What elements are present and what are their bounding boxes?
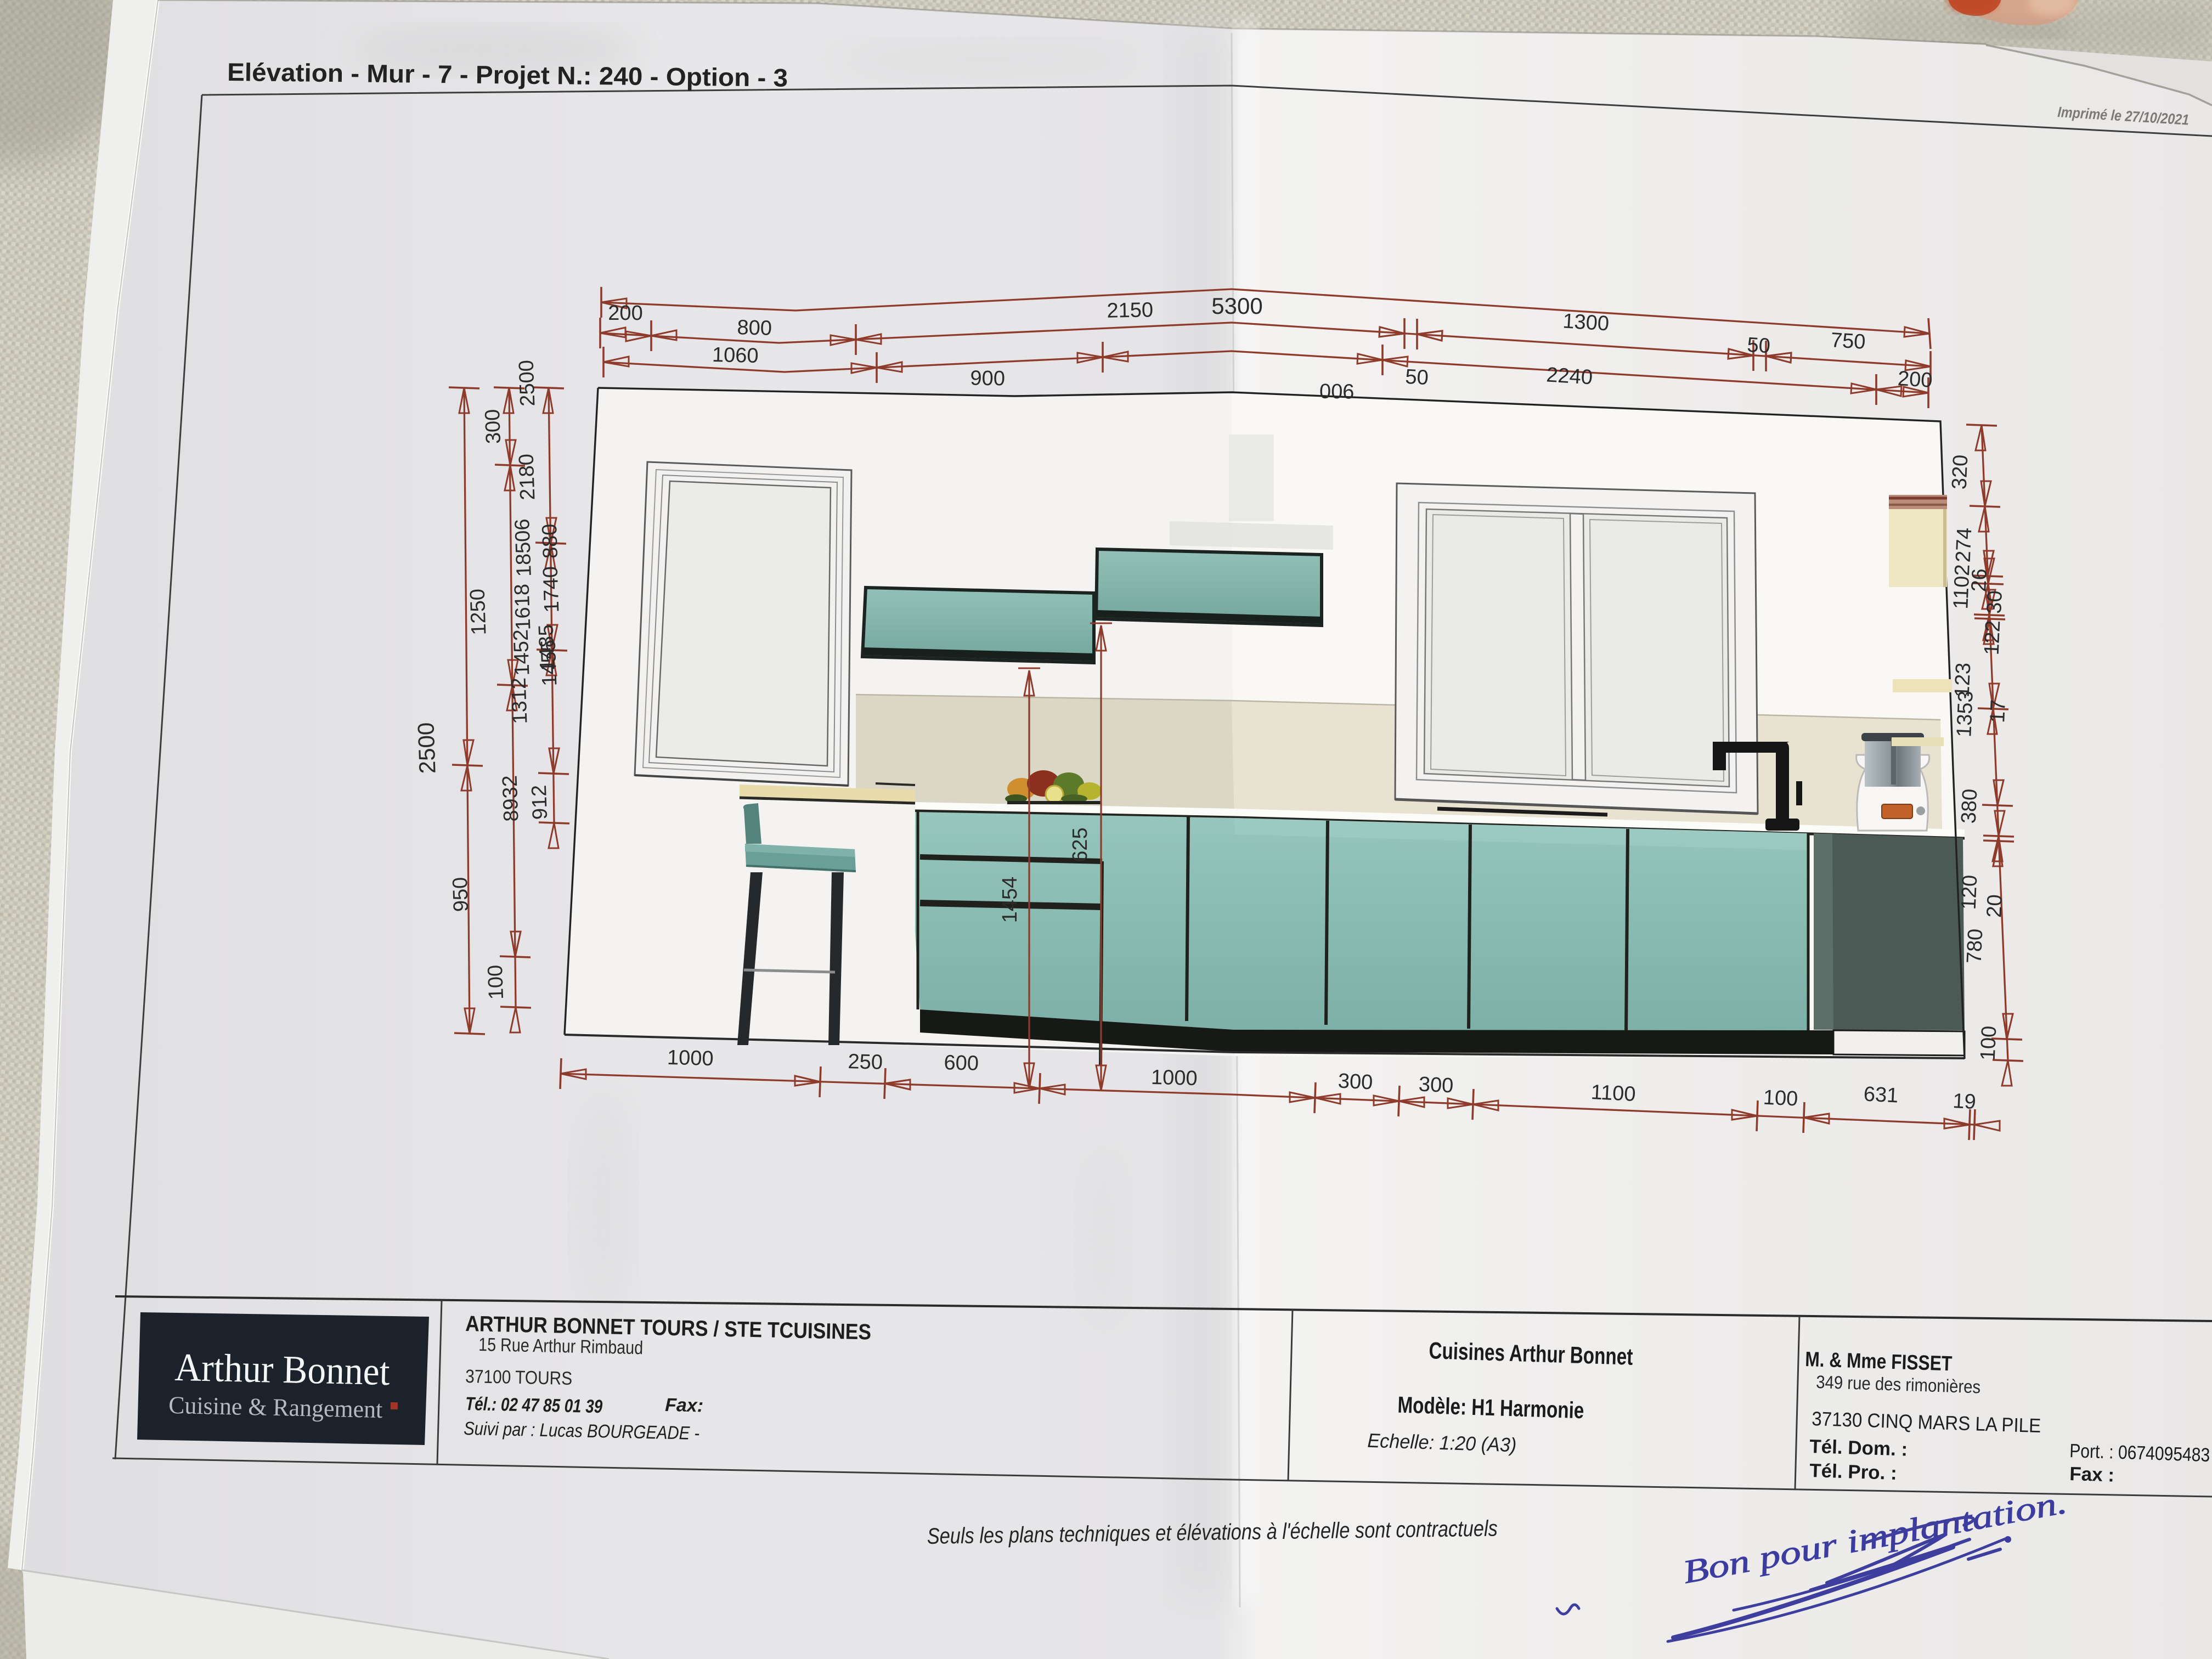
svg-text:625: 625 — [1069, 827, 1092, 862]
svg-text:1060: 1060 — [712, 343, 759, 368]
svg-text:120: 120 — [1957, 874, 1982, 910]
svg-text:Fax:: Fax: — [665, 1395, 704, 1416]
svg-text:250: 250 — [848, 1050, 883, 1074]
svg-text:1353: 1353 — [1953, 690, 1978, 737]
svg-text:1740: 1740 — [539, 566, 564, 613]
svg-text:200: 200 — [1897, 367, 1933, 392]
svg-text:750: 750 — [1830, 329, 1866, 354]
svg-text:1250: 1250 — [466, 588, 491, 635]
svg-text:2180: 2180 — [515, 453, 540, 500]
svg-text:2500: 2500 — [413, 722, 440, 774]
svg-text:Tél.: 02 47 85 01 39: Tél.: 02 47 85 01 39 — [465, 1393, 603, 1417]
svg-text:300: 300 — [481, 409, 505, 444]
svg-text:122: 122 — [1980, 620, 2005, 656]
svg-text:1300: 1300 — [1562, 309, 1610, 335]
svg-text:20: 20 — [1983, 894, 2007, 918]
svg-text:880: 880 — [538, 523, 562, 559]
svg-text:100: 100 — [1763, 1086, 1798, 1110]
svg-text:631: 631 — [1863, 1082, 1899, 1107]
svg-text:100: 100 — [484, 964, 508, 1000]
svg-text:5300: 5300 — [1211, 293, 1262, 319]
svg-text:Fax :: Fax : — [2069, 1463, 2115, 1486]
svg-text:100: 100 — [1977, 1025, 2001, 1061]
svg-text:800: 800 — [737, 316, 772, 340]
svg-text:1000: 1000 — [1150, 1066, 1198, 1090]
svg-text:950: 950 — [449, 877, 473, 912]
svg-text:300: 300 — [1418, 1073, 1454, 1097]
svg-text:26: 26 — [1967, 568, 1991, 592]
svg-text:900: 900 — [970, 366, 1005, 390]
svg-text:1452: 1452 — [510, 629, 534, 676]
svg-text:Echelle: 1:20 (A3): Echelle: 1:20 (A3) — [1367, 1429, 1517, 1457]
svg-text:200: 200 — [608, 302, 642, 325]
svg-text:Arthur Bonnet: Arthur Bonnet — [174, 1345, 391, 1393]
svg-text:17: 17 — [1986, 699, 2010, 723]
svg-text:320: 320 — [1948, 454, 1973, 490]
svg-text:1100: 1100 — [1590, 1081, 1637, 1106]
svg-text:780: 780 — [1963, 928, 1988, 964]
svg-text:1454: 1454 — [998, 877, 1022, 923]
svg-text:37100 TOURS: 37100 TOURS — [465, 1366, 573, 1389]
svg-text:1312: 1312 — [507, 677, 532, 724]
svg-text:1000: 1000 — [667, 1046, 714, 1070]
svg-text:Tél. Pro. :: Tél. Pro. : — [1809, 1460, 1898, 1484]
svg-text:900: 900 — [1319, 379, 1355, 402]
svg-text:15 Rue Arthur Rimbaud: 15 Rue Arthur Rimbaud — [478, 1334, 644, 1358]
svg-text:50: 50 — [1404, 365, 1429, 390]
svg-text:1618: 1618 — [511, 583, 535, 630]
svg-text:50: 50 — [1746, 334, 1771, 358]
svg-text:2150: 2150 — [1107, 298, 1153, 322]
svg-text:Cuisine & Rangement: Cuisine & Rangement — [168, 1391, 383, 1423]
svg-text:30: 30 — [1983, 590, 2007, 614]
svg-text:912: 912 — [528, 785, 552, 820]
svg-text:600: 600 — [944, 1051, 979, 1075]
svg-text:274: 274 — [1952, 527, 1977, 563]
svg-text:380: 380 — [1957, 788, 1982, 824]
svg-text:19: 19 — [1952, 1090, 1976, 1114]
svg-text:2240: 2240 — [1545, 363, 1593, 389]
svg-text:8932: 8932 — [499, 775, 523, 822]
svg-text:18506: 18506 — [511, 518, 536, 577]
svg-text:300: 300 — [1338, 1069, 1373, 1094]
svg-text:1455: 1455 — [537, 639, 562, 686]
svg-text:Port. : 0674095483: Port. : 0674095483 — [2069, 1440, 2210, 1466]
svg-text:Tél. Dom. :: Tél. Dom. : — [1809, 1436, 1908, 1460]
svg-text:Elévation - Mur - 7 - Projet N: Elévation - Mur - 7 - Projet N.: 240 - O… — [227, 58, 788, 92]
svg-text:2500: 2500 — [515, 359, 540, 407]
